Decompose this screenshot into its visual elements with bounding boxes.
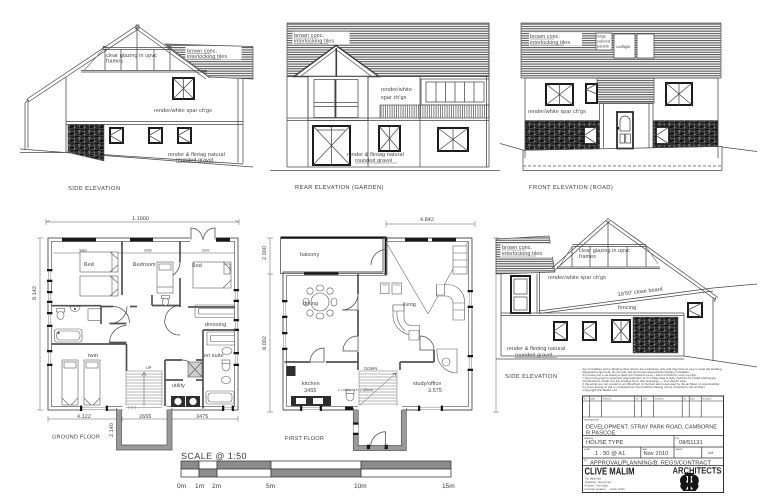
svg-text:SCALE @ 1:50: SCALE @ 1:50 xyxy=(181,451,247,461)
svg-text:for: for xyxy=(584,459,587,462)
svg-text:Copyright the Malim Ltd.: Copyright the Malim Ltd. xyxy=(583,389,618,392)
svg-text:twin: twin xyxy=(88,353,98,359)
svg-text:render/white spar ch'gs: render/white spar ch'gs xyxy=(154,108,212,114)
svg-text:3242: 3242 xyxy=(202,249,210,253)
svg-text:1 : 50 @ A1: 1 : 50 @ A1 xyxy=(595,450,625,457)
svg-text:revisions: revisions xyxy=(702,398,712,401)
svg-text:8.002: 8.002 xyxy=(262,336,268,350)
svg-text:1.1000: 1.1000 xyxy=(132,216,149,222)
svg-text:date: date xyxy=(690,398,695,401)
svg-text:3.575: 3.575 xyxy=(428,388,442,394)
svg-text:1m: 1m xyxy=(195,483,204,490)
svg-text:panels: panels xyxy=(597,44,609,49)
svg-text:Nov 2010: Nov 2010 xyxy=(644,450,669,457)
svg-text:5m: 5m xyxy=(266,483,275,490)
svg-text:3200: 3200 xyxy=(144,249,152,253)
svg-text:15m: 15m xyxy=(442,483,455,490)
svg-text:0m: 0m xyxy=(177,483,186,490)
svg-text:utility: utility xyxy=(172,383,185,389)
svg-text:ARCHITECTS: ARCHITECTS xyxy=(673,466,722,476)
svg-text:REAR ELEVATION (GARDEN): REAR ELEVATION (GARDEN) xyxy=(295,184,384,191)
svg-text:10m: 10m xyxy=(354,483,367,490)
svg-text:2.000: 2.000 xyxy=(262,246,268,260)
svg-text:frames: frames xyxy=(579,254,596,260)
svg-text:Bedroom: Bedroom xyxy=(133,262,156,268)
svg-text:Bed: Bed xyxy=(192,263,202,269)
svg-text:GROUND FLOOR: GROUND FLOOR xyxy=(52,435,100,441)
svg-text:spar ch'gs: spar ch'gs xyxy=(381,95,407,101)
svg-text:date: date xyxy=(643,398,648,401)
svg-text:SIDE ELEVATION: SIDE ELEVATION xyxy=(505,373,557,380)
svg-text:frames: frames xyxy=(106,59,123,65)
svg-text:1 x 600d = 13 r x 185mm: 1 x 600d = 13 r x 185mm xyxy=(338,388,374,392)
svg-text:Cornwall, England: Cornwall, England xyxy=(585,488,607,491)
svg-text:study/office: study/office xyxy=(413,381,441,387)
svg-text:SIDE ELEVATION: SIDE ELEVATION xyxy=(68,185,120,192)
svg-text:rooflight: rooflight xyxy=(616,44,631,49)
svg-text:development: development xyxy=(584,419,599,422)
svg-text:revisions: revisions xyxy=(655,398,665,401)
svg-text:en suite: en suite xyxy=(204,353,224,359)
svg-text:3455: 3455 xyxy=(304,388,316,394)
svg-text:balcony: balcony xyxy=(300,252,319,258)
svg-text:UP: UP xyxy=(146,365,152,370)
svg-text:2.140: 2.140 xyxy=(109,423,115,437)
svg-text:4.842: 4.842 xyxy=(420,217,434,223)
svg-text:revisions: revisions xyxy=(602,398,612,401)
svg-text:scale: scale xyxy=(584,448,591,451)
svg-text:render/white spar ch'gs: render/white spar ch'gs xyxy=(548,275,606,281)
svg-text:8.142: 8.142 xyxy=(32,286,38,300)
svg-text:fencing: fencing xyxy=(618,305,636,311)
svg-text:render/white: render/white xyxy=(381,87,412,93)
svg-text:08/51131: 08/51131 xyxy=(679,439,703,446)
svg-text:Bed: Bed xyxy=(84,262,94,268)
svg-text:HOUSE TYPE: HOUSE TYPE xyxy=(586,439,623,446)
svg-text:FRONT ELEVATION (ROAD): FRONT ELEVATION (ROAD) xyxy=(529,184,613,191)
svg-text:2m: 2m xyxy=(212,483,221,490)
svg-text:DOWN: DOWN xyxy=(364,366,377,371)
svg-text:dining: dining xyxy=(303,301,318,307)
svg-text:render/white spar ch'gs: render/white spar ch'gs xyxy=(528,109,586,115)
svg-text:2655: 2655 xyxy=(139,414,151,420)
svg-text:render & flinting natural: render & flinting natural xyxy=(507,346,565,352)
svg-text:3475: 3475 xyxy=(196,414,208,420)
svg-text:kitchen: kitchen xyxy=(302,381,320,387)
svg-text:CLIVE MALIM: CLIVE MALIM xyxy=(585,467,635,478)
svg-text:South 12345: South 12345 xyxy=(610,488,625,491)
svg-text:FIRST FLOOR: FIRST FLOOR xyxy=(285,436,324,442)
svg-text:drawn: drawn xyxy=(676,448,684,451)
svg-text:GM: GM xyxy=(708,451,713,455)
svg-text:date: date xyxy=(590,398,595,401)
svg-text:dressing: dressing xyxy=(205,322,226,328)
svg-text:4.122: 4.122 xyxy=(77,414,91,420)
svg-text:living: living xyxy=(403,302,416,308)
